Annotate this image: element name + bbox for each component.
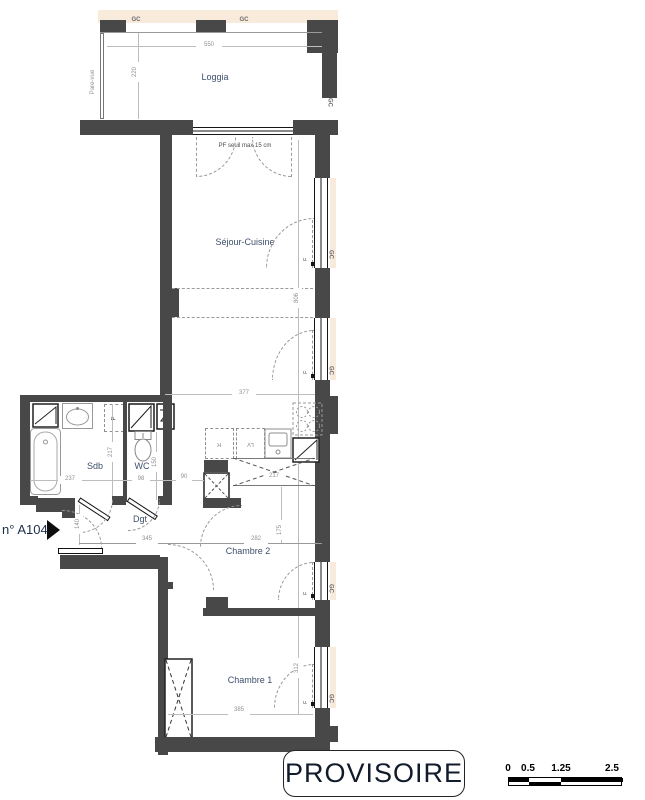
duct-box: F xyxy=(104,404,124,432)
dimension-label: 217 xyxy=(108,442,116,462)
door-swing-arc xyxy=(252,137,292,177)
floor-plan: GC GC Pare-vue 550 220 Loggia GC PF seui… xyxy=(0,0,645,800)
window-swing-arc xyxy=(272,330,314,380)
dimension-label: 282 xyxy=(244,536,268,544)
dimension-label: 806 xyxy=(294,288,302,308)
wall xyxy=(322,53,337,98)
fridge-box: R xyxy=(205,428,234,459)
dimension-label: 237 xyxy=(58,476,82,484)
door-swing-arc xyxy=(196,137,236,177)
dimension-label: 345 xyxy=(136,536,158,544)
gc-label: GC xyxy=(237,17,251,24)
wall xyxy=(322,396,338,434)
provisoire-stamp-text: PROVISOIRE xyxy=(285,758,463,789)
wall xyxy=(80,120,193,135)
room-label-chambre1: Chambre 1 xyxy=(210,675,290,685)
room-label-loggia: Loggia xyxy=(180,72,250,82)
toilet-icon xyxy=(132,431,154,463)
dimension-label: 385 xyxy=(228,707,250,715)
gc-label: GC xyxy=(327,692,334,706)
pare-vue-label: Pare-vue xyxy=(90,63,98,101)
wall xyxy=(315,268,330,318)
scale-tick-label: 2.5 xyxy=(600,763,624,774)
pare-vue-screen xyxy=(100,33,104,119)
dimension-label: 217 xyxy=(264,473,284,481)
dimension-label: 98 xyxy=(132,476,150,484)
dimension-label: 312 xyxy=(294,658,302,678)
window-mark xyxy=(311,262,315,266)
bath-cabinet-icon xyxy=(32,403,59,428)
gc-label: GC xyxy=(327,364,334,378)
fridge-label: R xyxy=(217,441,221,447)
entry-door-leaf xyxy=(58,548,103,554)
gc-label: GC xyxy=(327,582,334,596)
dimension-label: 90 xyxy=(176,474,192,482)
room-label-sdb: Sdb xyxy=(75,461,115,471)
scale-bar xyxy=(508,777,622,786)
washbasin-icon xyxy=(62,403,93,429)
scale-bar-segment xyxy=(561,778,623,782)
dishwasher-label: LV xyxy=(247,441,254,447)
cooktop-icon xyxy=(292,402,323,436)
wall xyxy=(158,496,172,505)
gc-label: GC xyxy=(326,96,333,110)
wall xyxy=(20,395,30,503)
kitchen-cabinet-icon xyxy=(203,472,230,500)
bathtub-icon xyxy=(30,428,61,495)
wall xyxy=(123,402,127,502)
wall xyxy=(20,395,168,402)
dimension-label: 150 xyxy=(152,452,160,472)
wardrobe-icon xyxy=(164,658,193,739)
wall xyxy=(307,20,338,53)
room-label-dgt: Dgt xyxy=(120,514,160,524)
dimension-label: 377 xyxy=(232,390,256,398)
radiator-mark: u. xyxy=(303,371,307,376)
provisoire-stamp: PROVISOIRE xyxy=(283,750,465,797)
wall xyxy=(322,726,338,742)
beam-dashed-line xyxy=(172,288,313,289)
wall xyxy=(160,135,172,397)
dimension-line xyxy=(79,543,322,544)
window-pf xyxy=(193,127,303,135)
window-swing-arc xyxy=(278,562,314,600)
unit-number-label: n° A104 xyxy=(2,522,48,537)
entry-arrow-icon xyxy=(47,520,60,540)
dimension-label: 220 xyxy=(132,62,140,82)
dimension-label: 550 xyxy=(196,42,222,50)
window-mark xyxy=(311,594,315,598)
gc-label: GC xyxy=(327,248,334,262)
window-mark xyxy=(311,374,315,378)
scale-tick-label: 1.25 xyxy=(548,763,574,774)
wall xyxy=(203,608,330,616)
radiator-mark: u. xyxy=(303,701,307,706)
kitchen-sink-icon xyxy=(264,428,292,459)
scale-bar-segment xyxy=(509,778,529,782)
scale-tick-label: 0.5 xyxy=(518,763,538,774)
room-label-chambre2: Chambre 2 xyxy=(208,546,288,556)
scale-tick-label: 0 xyxy=(502,763,514,774)
dishwasher-box: LV xyxy=(236,428,265,459)
wall xyxy=(163,397,172,502)
gc-label: GC xyxy=(129,17,143,24)
scale-bar-segment xyxy=(529,782,561,786)
wall xyxy=(112,496,126,505)
beam-dashed-line xyxy=(172,317,313,318)
counter-icon xyxy=(233,458,315,486)
dimension-label: 140 xyxy=(75,514,83,534)
radiator-mark: u. xyxy=(303,592,307,597)
wall xyxy=(204,460,228,472)
wall-line xyxy=(100,32,322,33)
wall xyxy=(60,555,160,569)
wall xyxy=(315,135,330,178)
window-mark xyxy=(311,702,315,706)
dimension-label: 175 xyxy=(277,520,285,540)
wall xyxy=(170,288,179,317)
door-swing-arc xyxy=(200,505,242,547)
window-line xyxy=(312,330,313,380)
radiator-mark: u. xyxy=(303,258,307,263)
window-line xyxy=(312,220,313,268)
wall xyxy=(293,120,338,135)
